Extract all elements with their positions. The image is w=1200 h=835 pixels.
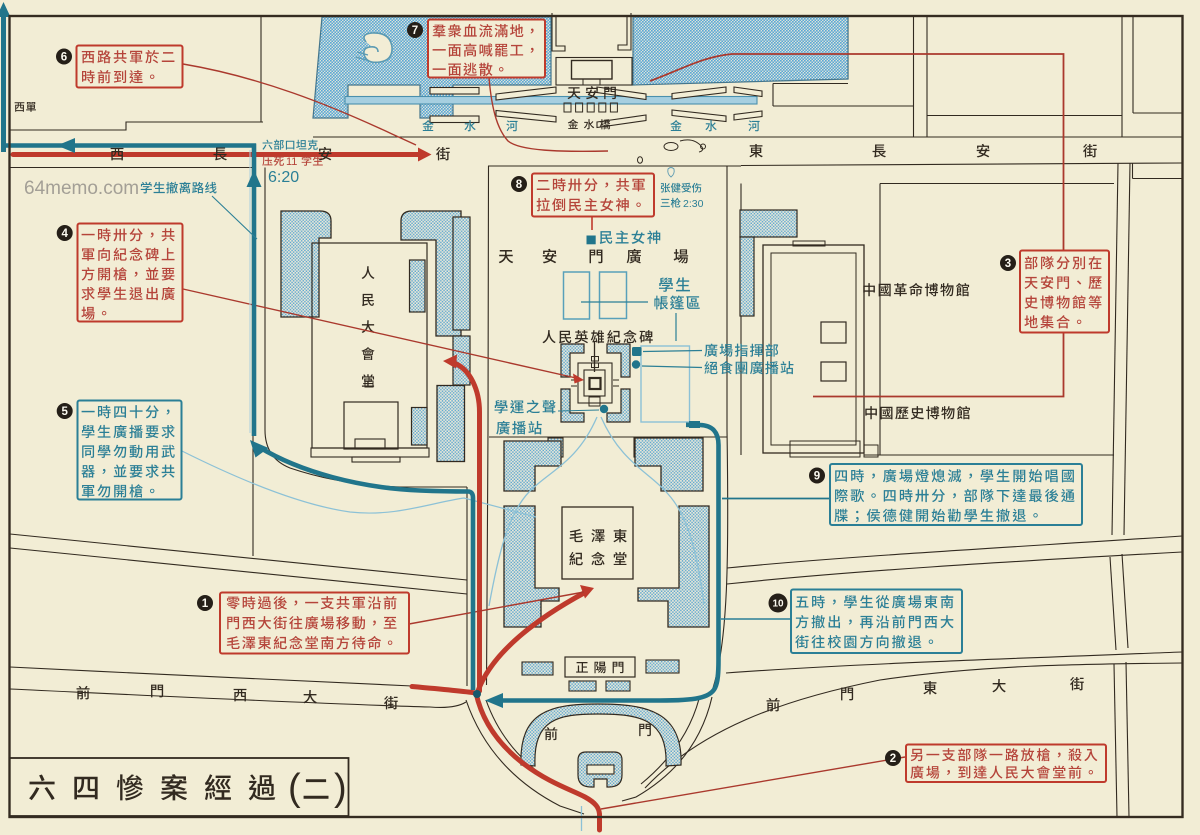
svg-text:11: 11	[286, 156, 297, 168]
svg-text:(: (	[288, 767, 301, 809]
svg-text:4: 4	[61, 228, 68, 240]
svg-text:64memo.com: 64memo.com	[24, 178, 139, 199]
svg-text:2: 2	[890, 753, 896, 765]
svg-text:2:30: 2:30	[683, 198, 704, 210]
svg-text:10: 10	[772, 599, 784, 610]
svg-text:1: 1	[202, 598, 209, 610]
svg-text:): )	[334, 767, 347, 809]
svg-text:5: 5	[61, 406, 68, 418]
svg-text:8: 8	[516, 179, 523, 191]
svg-text:6:20: 6:20	[268, 169, 299, 186]
svg-text:9: 9	[814, 471, 820, 483]
svg-text:3: 3	[1005, 258, 1011, 270]
svg-text:7: 7	[412, 25, 418, 37]
svg-text:6: 6	[61, 52, 67, 64]
